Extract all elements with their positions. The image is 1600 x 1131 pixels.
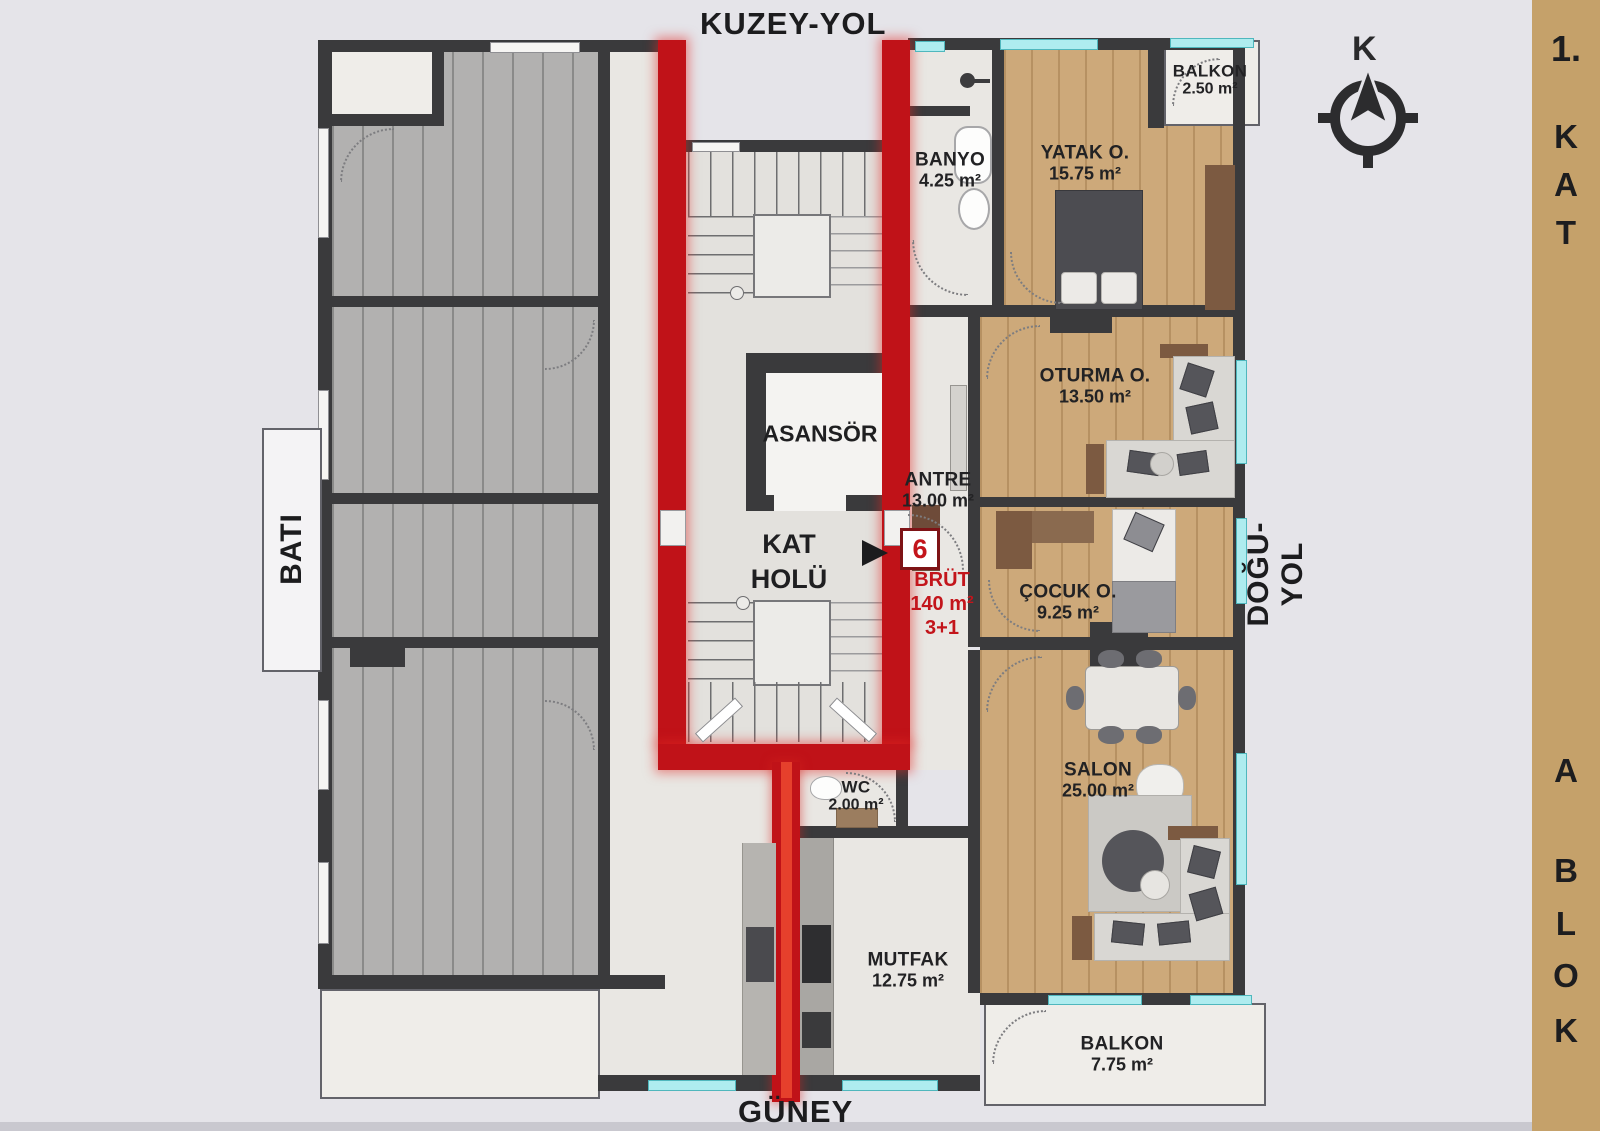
coffee-table <box>1140 870 1170 900</box>
window <box>318 862 329 944</box>
bed-pillow <box>1101 272 1137 304</box>
compass-rose-icon <box>1318 66 1418 176</box>
door-frame <box>660 510 686 546</box>
room-label-cocuk: ÇOCUK O.9.25 m² <box>1019 581 1116 622</box>
wall <box>432 44 444 126</box>
floor-hall-label: KAT HOLÜ <box>751 527 828 597</box>
wall <box>968 650 980 993</box>
window <box>318 128 329 238</box>
sofa-pillow <box>1157 920 1191 945</box>
stair-post <box>730 286 744 300</box>
wall <box>322 114 444 126</box>
elevator-door-gap <box>774 495 846 511</box>
dining-chair <box>1136 726 1162 744</box>
sidebar-letter: O <box>1553 957 1579 995</box>
wall-pilaster <box>350 637 405 667</box>
unit-layout: 3+1 <box>925 617 959 639</box>
sidebar-letter: K <box>1554 118 1578 156</box>
hall-label-line1: KAT <box>762 529 816 559</box>
sofa-pillow <box>1177 450 1210 476</box>
east-road-label: DOĞU-YOL <box>1242 494 1310 654</box>
sofa-wood-accent <box>1072 916 1092 960</box>
dining-chair <box>1066 686 1084 710</box>
bed-pillow <box>1061 272 1097 304</box>
north-road-label: KUZEY-YOL <box>700 6 886 42</box>
sidebar-letter: B <box>1554 852 1578 890</box>
window <box>1000 39 1098 50</box>
wall <box>318 975 665 989</box>
dining-chair <box>1136 650 1162 668</box>
floor-plan-canvas: KUZEY-YOL GÜNEY BATI DOĞU-YOL K 1. K A T… <box>0 0 1600 1131</box>
stair-landing <box>753 600 831 686</box>
wall <box>598 52 610 989</box>
room-label-banyo: BANYO4.25 m² <box>915 149 985 190</box>
window <box>1236 360 1247 464</box>
brut-label: BRÜT <box>914 569 970 591</box>
compass-north-letter: K <box>1352 30 1377 69</box>
wall <box>992 50 1004 310</box>
stair-treads <box>688 152 882 216</box>
room-label-balkon-top: BALKON2.50 m² <box>1173 62 1248 99</box>
dining-chair <box>1098 650 1124 668</box>
red-section-line-highlight <box>781 762 792 1098</box>
window <box>1236 753 1247 885</box>
kitchen-sink <box>802 1012 831 1048</box>
window <box>490 42 580 53</box>
sofa-pillow <box>1111 920 1145 945</box>
window <box>648 1080 736 1091</box>
wall <box>332 296 598 307</box>
elevator-label: ASANSÖR <box>762 421 877 448</box>
red-core-wall-right <box>882 40 910 744</box>
floor-block-sidebar: 1. K A T A B L O K <box>1532 0 1600 1131</box>
sidebar-letter: K <box>1554 1012 1578 1050</box>
window <box>318 700 329 790</box>
window <box>692 142 740 152</box>
window <box>1190 995 1252 1005</box>
brut-area: 140 m² <box>910 593 973 615</box>
west-label: BATI <box>275 499 309 599</box>
stair-landing <box>753 214 831 298</box>
single-bed-blanket <box>1112 581 1176 633</box>
wardrobe <box>1205 165 1235 310</box>
unit-number-badge: 6 <box>900 528 940 570</box>
compass: K <box>1318 30 1418 175</box>
stair-treads-dashed <box>830 216 882 296</box>
room-label-yatak: YATAK O.15.75 m² <box>1041 142 1130 183</box>
left-unit-balcony <box>322 44 440 124</box>
window <box>1048 995 1142 1005</box>
room-label-mutfak: MUTFAK12.75 m² <box>868 949 949 990</box>
shower-arm-icon <box>973 79 990 83</box>
room-label-wc: WC2.00 m² <box>828 778 883 815</box>
wall <box>908 106 970 116</box>
red-core-wall-left <box>658 40 686 744</box>
stove-mirrored <box>746 927 774 982</box>
hall-label-line2: HOLÜ <box>751 564 828 594</box>
dining-chair <box>1178 686 1196 710</box>
left-unit-room <box>332 648 598 975</box>
side-table <box>1150 452 1174 476</box>
dining-chair <box>1098 726 1124 744</box>
wall <box>332 493 598 504</box>
stair-post <box>736 596 750 610</box>
sidebar-floor-number: 1. <box>1551 28 1581 70</box>
sidebar-letter: A <box>1554 166 1578 204</box>
left-unit-terrace <box>320 989 600 1099</box>
south-label: GÜNEY <box>738 1094 853 1130</box>
stair-treads <box>688 602 754 682</box>
kids-desk <box>996 511 1032 569</box>
sofa-pillow <box>1185 401 1218 434</box>
room-label-oturma: OTURMA O.13.50 m² <box>1040 365 1151 406</box>
room-label-antre: ANTRE13.00 m² <box>902 469 974 510</box>
window <box>1170 38 1254 48</box>
unit-gross-area: BRÜT 140 m² 3+1 <box>910 568 973 640</box>
stair-treads-dashed <box>830 602 882 682</box>
sink <box>958 188 990 230</box>
wall <box>800 826 980 838</box>
wall <box>1148 40 1164 128</box>
sidebar-letter: L <box>1556 905 1576 943</box>
stove <box>802 925 831 983</box>
west-label-box: BATI <box>262 428 322 672</box>
dining-table <box>1085 666 1179 730</box>
wall <box>980 497 1245 507</box>
sofa-wood-accent <box>1086 444 1104 494</box>
room-label-salon: SALON25.00 m² <box>1062 759 1134 800</box>
entrance-arrow-icon <box>862 540 888 566</box>
window <box>842 1080 938 1091</box>
window <box>915 41 945 52</box>
left-unit-room <box>332 504 598 637</box>
room-label-balkon-bottom: BALKON7.75 m² <box>1080 1033 1163 1074</box>
sidebar-letter: T <box>1556 214 1576 252</box>
sidebar-letter: A <box>1554 752 1578 790</box>
stair-treads <box>688 216 754 296</box>
